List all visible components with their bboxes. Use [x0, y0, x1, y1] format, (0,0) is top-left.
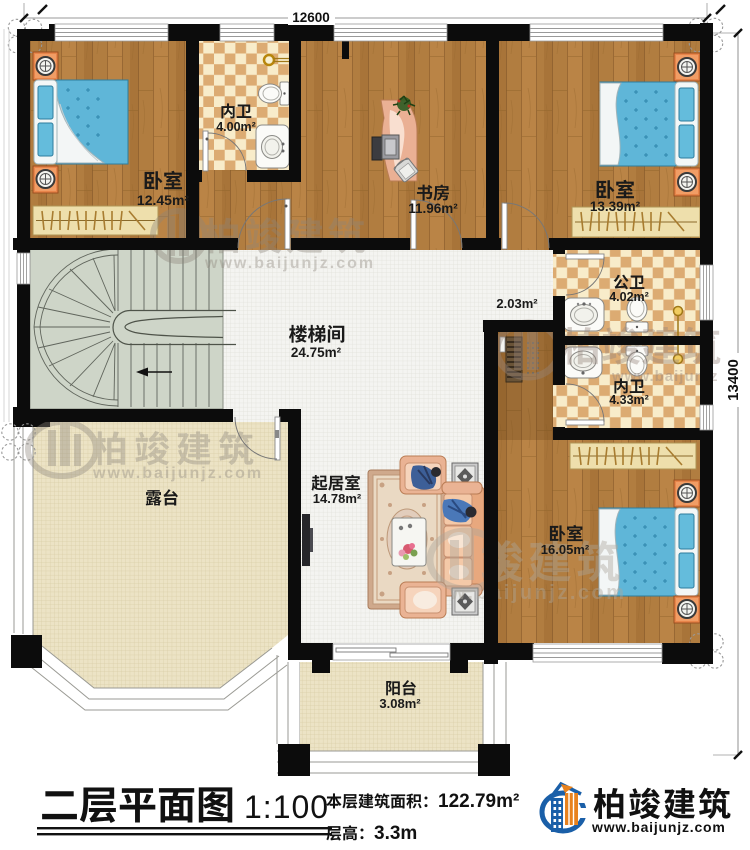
svg-text:3.08m²: 3.08m²	[379, 696, 421, 711]
svg-text:www.baijunjz.com: www.baijunjz.com	[591, 819, 726, 835]
svg-text:12.45m²: 12.45m²	[137, 192, 189, 208]
svg-text:14.78m²: 14.78m²	[313, 491, 362, 506]
svg-text:16.05m²: 16.05m²	[541, 542, 590, 557]
svg-text:4.00m²: 4.00m²	[216, 120, 256, 134]
svg-text:13400: 13400	[725, 359, 742, 401]
svg-text:1:100: 1:100	[244, 789, 329, 825]
svg-text:w.baijunjz.com: w.baijunjz.com	[449, 582, 627, 604]
svg-text:12600: 12600	[292, 10, 330, 25]
svg-text:www.baijunjz.com: www.baijunjz.com	[204, 255, 375, 272]
svg-text:13.39m²: 13.39m²	[590, 199, 641, 214]
svg-text:4.02m²: 4.02m²	[609, 290, 649, 304]
svg-text:3.3m: 3.3m	[374, 823, 417, 844]
svg-text:122.79m²: 122.79m²	[438, 791, 519, 812]
svg-text:www.baijunjz.com: www.baijunjz.com	[92, 465, 263, 482]
svg-text:11.96m²: 11.96m²	[408, 201, 458, 216]
svg-text:24.75m²: 24.75m²	[291, 345, 342, 360]
svg-text:4.33m²: 4.33m²	[609, 393, 649, 407]
svg-text:2.03m²: 2.03m²	[496, 296, 538, 311]
